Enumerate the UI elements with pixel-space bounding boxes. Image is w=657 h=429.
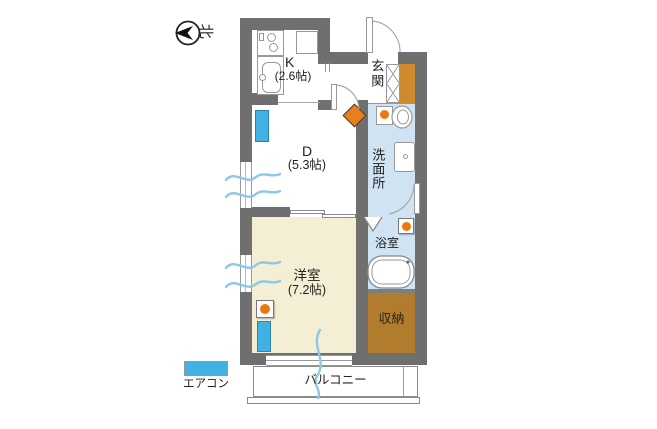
kitchen-right-wall [318, 18, 330, 64]
legend-aircon-swatch [184, 361, 228, 376]
tub-control-dot [384, 272, 393, 281]
western-window [240, 255, 252, 292]
dining-size-label: (5.3帖) [252, 159, 362, 173]
aircon-unit-western [257, 321, 271, 352]
washroom-label: 洗面所 [370, 148, 384, 190]
balcony-window-centerline [266, 360, 352, 361]
kitchen-opening-tick-1 [325, 63, 326, 72]
wave-mark-dining-1 [226, 174, 280, 180]
floor-plan-canvas: 北 K (2.6帖) 玄関 D (5.3帖) 洗面所 浴室 洋室 (7.2帖) … [0, 0, 657, 429]
center-partition-wall [356, 100, 368, 353]
entrance-washroom-boundary [368, 103, 415, 104]
dining-western-divider [252, 207, 290, 217]
balcony-label: バルコニー [253, 374, 418, 388]
entrance-door-leaf [366, 17, 373, 53]
western-window-centerline [245, 255, 246, 292]
bath-storage-divider [368, 289, 415, 293]
compass-needle [175, 26, 193, 40]
legend-aircon-label: エアコン [178, 378, 234, 391]
dining-window [240, 162, 252, 208]
storage-label: 収納 [368, 312, 415, 326]
stove-control [259, 33, 264, 41]
refrigerator-space [296, 31, 318, 54]
western-room-label: 洋室 [252, 269, 362, 284]
washroom-door-leaf [414, 183, 420, 214]
sliding-door-panel-right [322, 214, 356, 218]
compass-north-label: 北 [196, 24, 213, 39]
wave-mark-dining-2 [226, 191, 280, 197]
western-control-dot [260, 304, 270, 314]
aircon-unit-dining [255, 110, 269, 142]
shoe-cabinet [400, 64, 415, 103]
dining-door-leaf [331, 84, 337, 110]
sliding-door-panel-left [290, 210, 325, 214]
western-room-size-label: (7.2帖) [252, 284, 362, 298]
kitchen-size-label: (2.6帖) [266, 70, 320, 83]
entrance-label: 玄関 [369, 59, 383, 89]
entrance-top-wall-left [330, 52, 368, 64]
stove-burner-1 [267, 33, 276, 42]
bathroom-label: 浴室 [366, 237, 408, 250]
faucet-icon [259, 74, 266, 81]
shoe-cabinet-bifold-door [386, 64, 400, 103]
kitchen-dining-boundary [278, 102, 320, 103]
stove-burner-2 [269, 43, 278, 52]
washbasin-drain [403, 154, 408, 159]
entrance-door-arc [373, 21, 400, 52]
top-outer-wall [240, 18, 330, 30]
toilet-marker-dot [380, 110, 389, 119]
dining-window-centerline [245, 162, 246, 208]
balcony-railing [247, 397, 420, 404]
kitchen-opening-tick-2 [329, 63, 330, 72]
bath-control-dot [402, 222, 411, 231]
